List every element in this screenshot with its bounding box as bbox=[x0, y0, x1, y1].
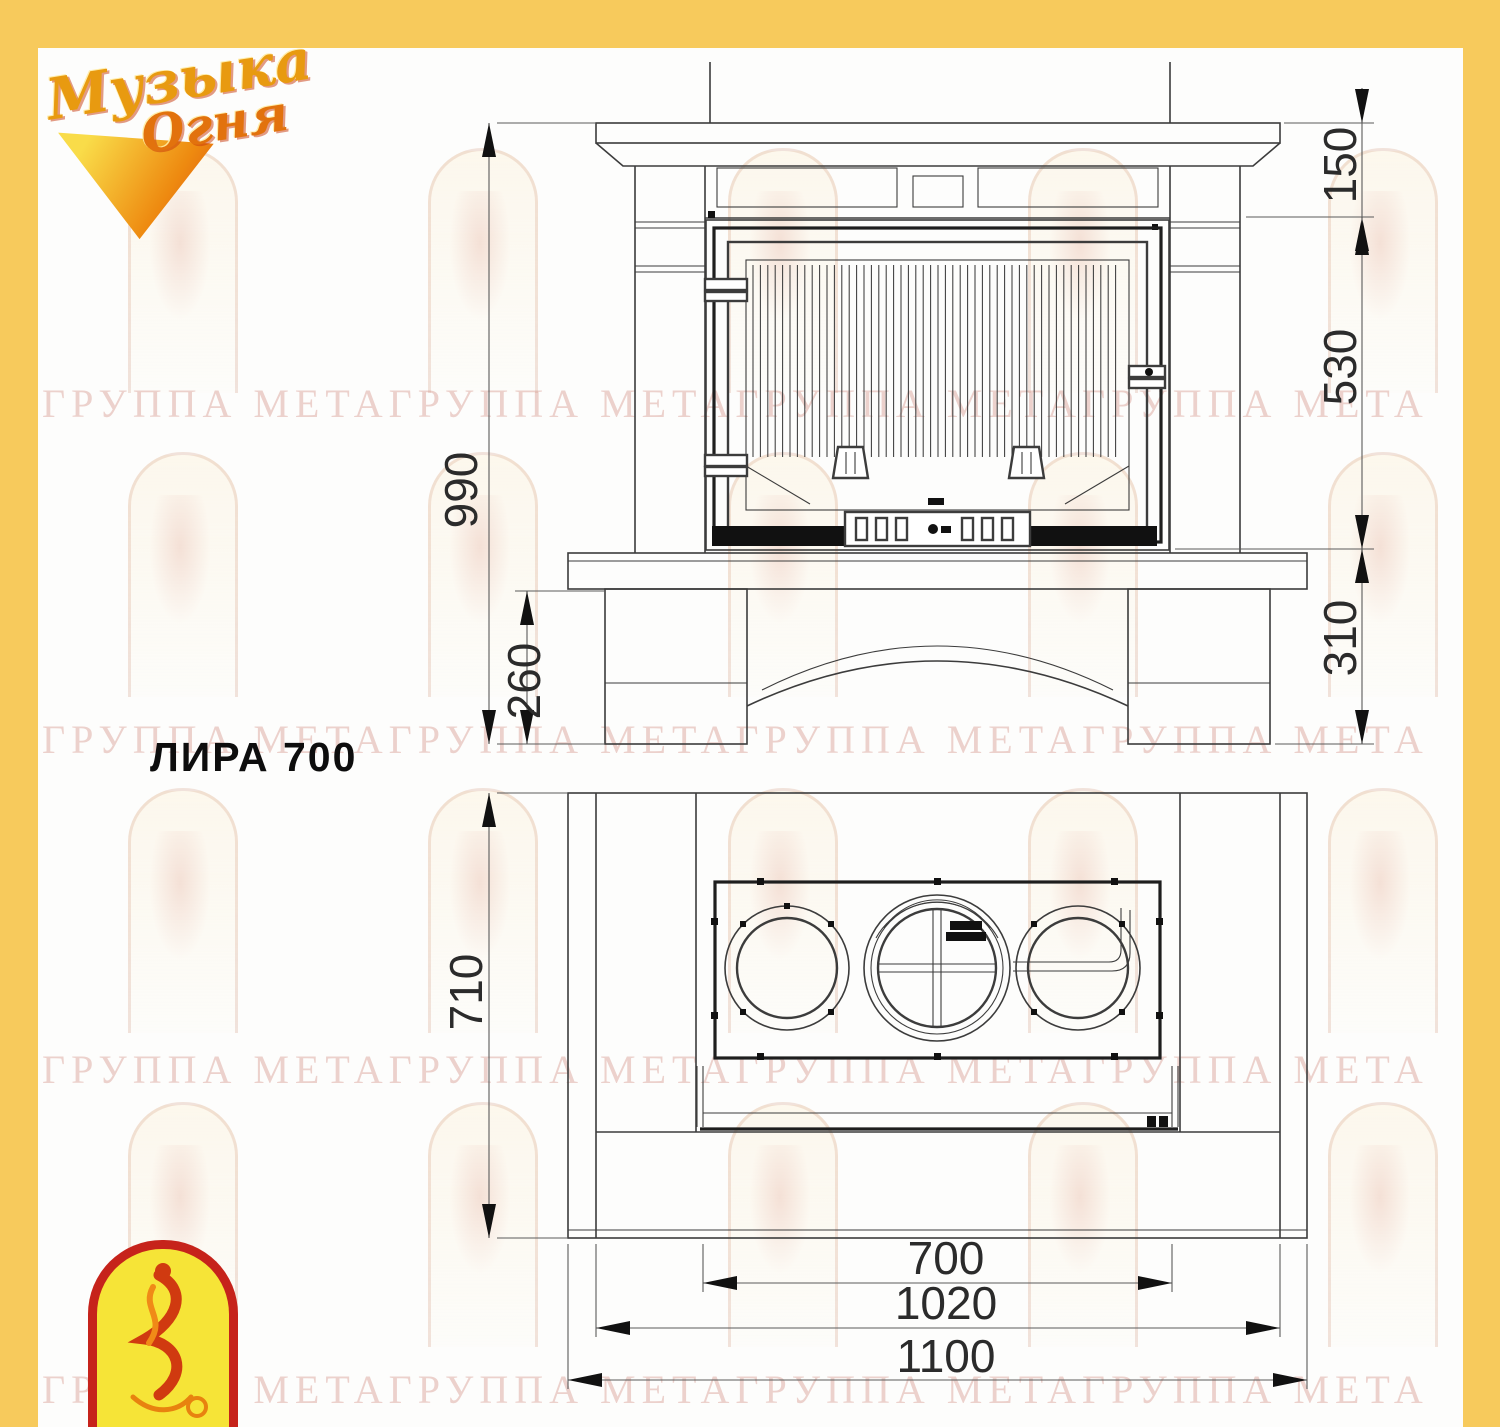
damper-label-stamp bbox=[950, 921, 982, 930]
dimension-hearth-height: 310 bbox=[1275, 549, 1374, 744]
dimension-base-height: 260 bbox=[498, 591, 605, 744]
svg-text:150: 150 bbox=[1314, 127, 1366, 204]
grate-foot-left bbox=[833, 447, 868, 478]
door-hinges bbox=[705, 279, 747, 476]
svg-text:260: 260 bbox=[498, 643, 550, 720]
firebird-icon bbox=[97, 1249, 229, 1427]
firebird-emblem bbox=[88, 1240, 238, 1427]
page: ГРУППА МЕТАГРУППА МЕТАГРУППА МЕТАГРУППА … bbox=[0, 0, 1500, 1427]
firebox-door bbox=[705, 220, 1169, 550]
front-elevation-drawing bbox=[568, 62, 1307, 744]
plan-front-tray bbox=[697, 1066, 1178, 1129]
base-legs bbox=[605, 589, 1270, 744]
air-vent-controls bbox=[712, 512, 1157, 546]
model-title: ЛИРА 700 bbox=[150, 734, 357, 781]
mantel-shelf bbox=[596, 123, 1280, 143]
firebox-top-plate bbox=[711, 878, 1163, 1060]
dimension-mantel-height: 150 bbox=[1246, 88, 1374, 252]
plan-view-drawing bbox=[568, 793, 1307, 1238]
svg-text:1020: 1020 bbox=[895, 1277, 997, 1329]
grate-foot-right bbox=[1009, 447, 1044, 478]
svg-text:310: 310 bbox=[1314, 600, 1366, 677]
dimension-firebox-height: 530 bbox=[1175, 218, 1374, 549]
flue-opening-center bbox=[864, 895, 1010, 1041]
mantel-cornice bbox=[596, 143, 1280, 166]
door-latch bbox=[1129, 366, 1165, 388]
flue-opening-left bbox=[725, 903, 849, 1030]
svg-text:1100: 1100 bbox=[897, 1330, 996, 1382]
door-grille-ribs bbox=[753, 265, 1116, 457]
hearth-shelf bbox=[568, 553, 1307, 589]
base-arch-outer bbox=[747, 661, 1128, 706]
dimension-depth: 710 bbox=[440, 793, 568, 1238]
brand-logo: Музыка Огня bbox=[42, 30, 339, 265]
flue-opening-right bbox=[1013, 906, 1140, 1030]
svg-text:530: 530 bbox=[1314, 329, 1366, 406]
base-arch-inner bbox=[762, 646, 1113, 690]
svg-text:710: 710 bbox=[440, 954, 492, 1031]
svg-text:990: 990 bbox=[435, 452, 487, 529]
